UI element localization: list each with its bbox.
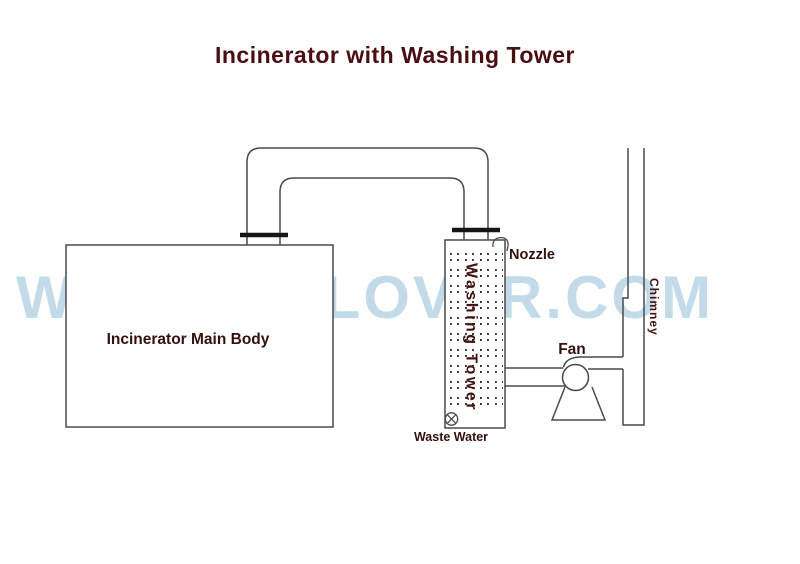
- incinerator-diagram: Incinerator Main Body Washing Tower Nozz…: [0, 0, 800, 564]
- pipe-outer-wall: [247, 148, 488, 245]
- fan-housing: [552, 387, 605, 420]
- waste-water-label: Waste Water: [414, 430, 488, 444]
- diagram-page: Incinerator with Washing Tower WWW.HICLO…: [0, 0, 800, 564]
- fan-circle: [563, 365, 589, 391]
- page-title: Incinerator with Washing Tower: [0, 42, 790, 69]
- washing-tower-label: Washing Tower: [463, 263, 480, 412]
- fan-label: Fan: [558, 341, 586, 358]
- incinerator-label: Incinerator Main Body: [107, 331, 270, 348]
- chimney-shape: [623, 148, 644, 425]
- pipe-inner-wall: [280, 178, 464, 245]
- nozzle-label: Nozzle: [509, 247, 555, 263]
- chimney-label: Chimney: [647, 278, 661, 336]
